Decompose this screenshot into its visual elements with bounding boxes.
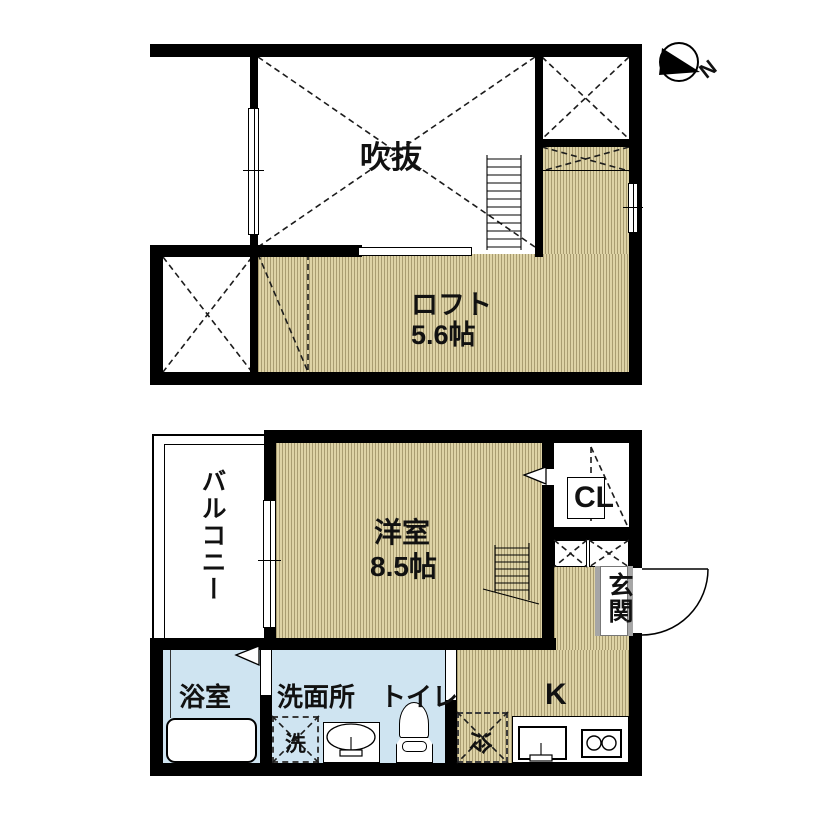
shoe-cabinet-x xyxy=(554,540,587,567)
wall xyxy=(250,235,258,372)
bathroom-label: 浴室 xyxy=(179,677,231,714)
open-area-x-marks xyxy=(163,257,252,372)
void-label: 吹抜 xyxy=(360,132,422,177)
western-room-size-label: 8.5帖 xyxy=(370,545,437,585)
closet-label: CL xyxy=(574,481,614,515)
window-tick xyxy=(623,207,643,208)
kitchen-faucet xyxy=(518,726,567,766)
bathroom-door-marker xyxy=(236,646,259,665)
kitchen-label: K xyxy=(545,678,567,712)
loft-railing xyxy=(358,247,472,256)
washer-label: 洗 xyxy=(285,728,306,758)
window xyxy=(628,183,638,233)
loft-slope-lines xyxy=(258,254,314,372)
shoe-cabinet-x xyxy=(589,540,629,567)
washbasin xyxy=(323,722,380,763)
compass-needle xyxy=(659,42,699,82)
window xyxy=(248,108,259,235)
loft-storage-edge xyxy=(542,170,629,171)
loft-storage-x-marks xyxy=(542,147,629,171)
wall xyxy=(629,633,642,776)
refrigerator-label: 冷 xyxy=(466,732,500,755)
stove-burners xyxy=(581,729,622,758)
closet-door-marker xyxy=(524,467,546,484)
wall xyxy=(264,430,642,443)
wall xyxy=(554,527,629,540)
window xyxy=(263,500,276,628)
bathroom-door xyxy=(260,650,272,695)
window-tick xyxy=(258,560,281,561)
wall xyxy=(629,430,642,568)
wall xyxy=(150,638,556,650)
upper-right-x-marks xyxy=(542,57,629,139)
wall xyxy=(150,44,642,57)
loft-size-label: 5.6帖 xyxy=(411,313,476,352)
wall xyxy=(150,763,642,776)
entrance-door-arc xyxy=(629,558,715,642)
bathroom-inner-line xyxy=(170,650,171,718)
wall xyxy=(542,484,554,650)
window-tick xyxy=(243,170,264,171)
wall xyxy=(150,638,163,776)
stairs-lower xyxy=(482,543,540,605)
compass-north-label: N xyxy=(695,56,722,84)
wall xyxy=(150,245,163,385)
wall xyxy=(150,372,642,385)
wall xyxy=(535,44,543,257)
washroom-label: 洗面所 xyxy=(277,677,355,714)
wall xyxy=(542,139,629,147)
balcony-label: バルコニー xyxy=(194,468,230,638)
wall xyxy=(542,430,554,468)
toilet-label: トイレ xyxy=(380,677,458,714)
stairs-to-loft xyxy=(486,155,522,250)
wall xyxy=(264,443,276,500)
bathtub xyxy=(166,718,257,763)
floor-plan: 吹抜 ロフト 5.6帖 N バルコニー CL xyxy=(0,0,840,840)
wall xyxy=(260,695,272,763)
wall xyxy=(250,57,258,108)
